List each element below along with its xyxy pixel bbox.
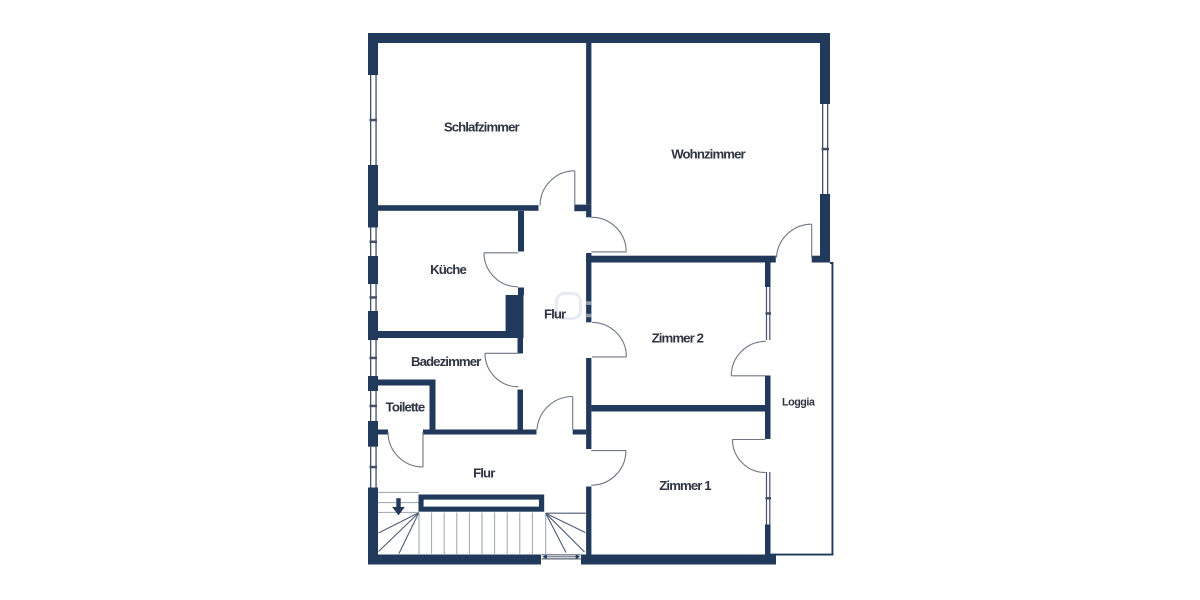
- svg-text:Toilette: Toilette: [386, 400, 425, 415]
- svg-text:Zimmer 1: Zimmer 1: [659, 478, 711, 493]
- svg-text:Flur: Flur: [544, 307, 566, 322]
- svg-text:Wohnzimmer: Wohnzimmer: [671, 147, 745, 162]
- svg-text:Zimmer 2: Zimmer 2: [652, 330, 704, 345]
- svg-text:Schlafzimmer: Schlafzimmer: [444, 119, 520, 134]
- svg-text:Badezimmer: Badezimmer: [411, 354, 481, 369]
- svg-text:Küche: Küche: [430, 262, 466, 277]
- svg-text:Loggia: Loggia: [782, 397, 816, 409]
- svg-text:Flur: Flur: [473, 465, 495, 480]
